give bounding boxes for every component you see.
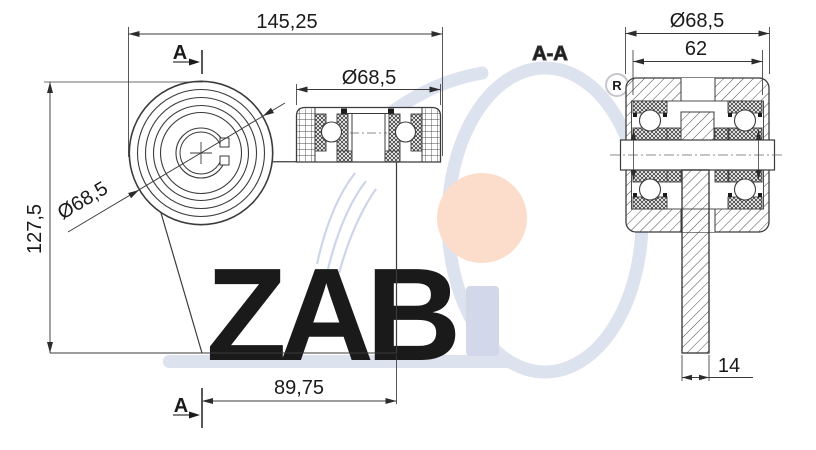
bearing-ball	[640, 110, 661, 131]
bearing-ball	[322, 122, 342, 142]
bearing-ball	[396, 122, 416, 142]
bearing-ball	[640, 179, 661, 200]
svg-text:14: 14	[718, 355, 740, 377]
axle-shaft	[621, 140, 775, 170]
section-view: A-A	[532, 10, 785, 381]
dim-plate-thickness: 14	[682, 355, 753, 381]
tread-grid-left	[298, 109, 315, 162]
seal-mark	[341, 109, 347, 115]
section-marker-bottom: A	[173, 388, 202, 428]
svg-text:127,5: 127,5	[24, 204, 46, 254]
svg-text:R: R	[612, 78, 622, 93]
seal-mark	[388, 109, 394, 115]
bearing-ball	[735, 179, 756, 200]
mounting-plate	[682, 170, 709, 353]
side-view: Ø68,5	[297, 67, 441, 162]
technical-drawing-page: ZAB R	[0, 0, 816, 450]
brand-i-stem	[466, 286, 499, 356]
svg-text:62: 62	[685, 38, 707, 60]
svg-text:Ø68,5: Ø68,5	[670, 10, 724, 32]
swoosh-tail	[392, 73, 482, 112]
svg-text:145,25: 145,25	[256, 11, 317, 33]
hub-spacer	[681, 112, 714, 140]
dim-overall-height: 127,5	[24, 82, 203, 353]
drawing-canvas: ZAB R	[0, 0, 816, 450]
dim-wheel-diameter-front: Ø68,5	[54, 103, 285, 232]
svg-text:Ø68,5: Ø68,5	[342, 67, 396, 89]
svg-text:A: A	[173, 42, 187, 64]
registered-icon: R	[606, 74, 628, 96]
svg-text:A: A	[174, 395, 188, 417]
bearing-ball	[735, 110, 756, 131]
section-marker-top: A	[173, 42, 202, 74]
section-label: A-A	[532, 43, 568, 65]
svg-text:89,75: 89,75	[274, 377, 324, 399]
brand-letters: ZAB	[206, 241, 456, 388]
tread-grid-right	[422, 109, 440, 162]
svg-text:Ø68,5: Ø68,5	[54, 177, 112, 224]
